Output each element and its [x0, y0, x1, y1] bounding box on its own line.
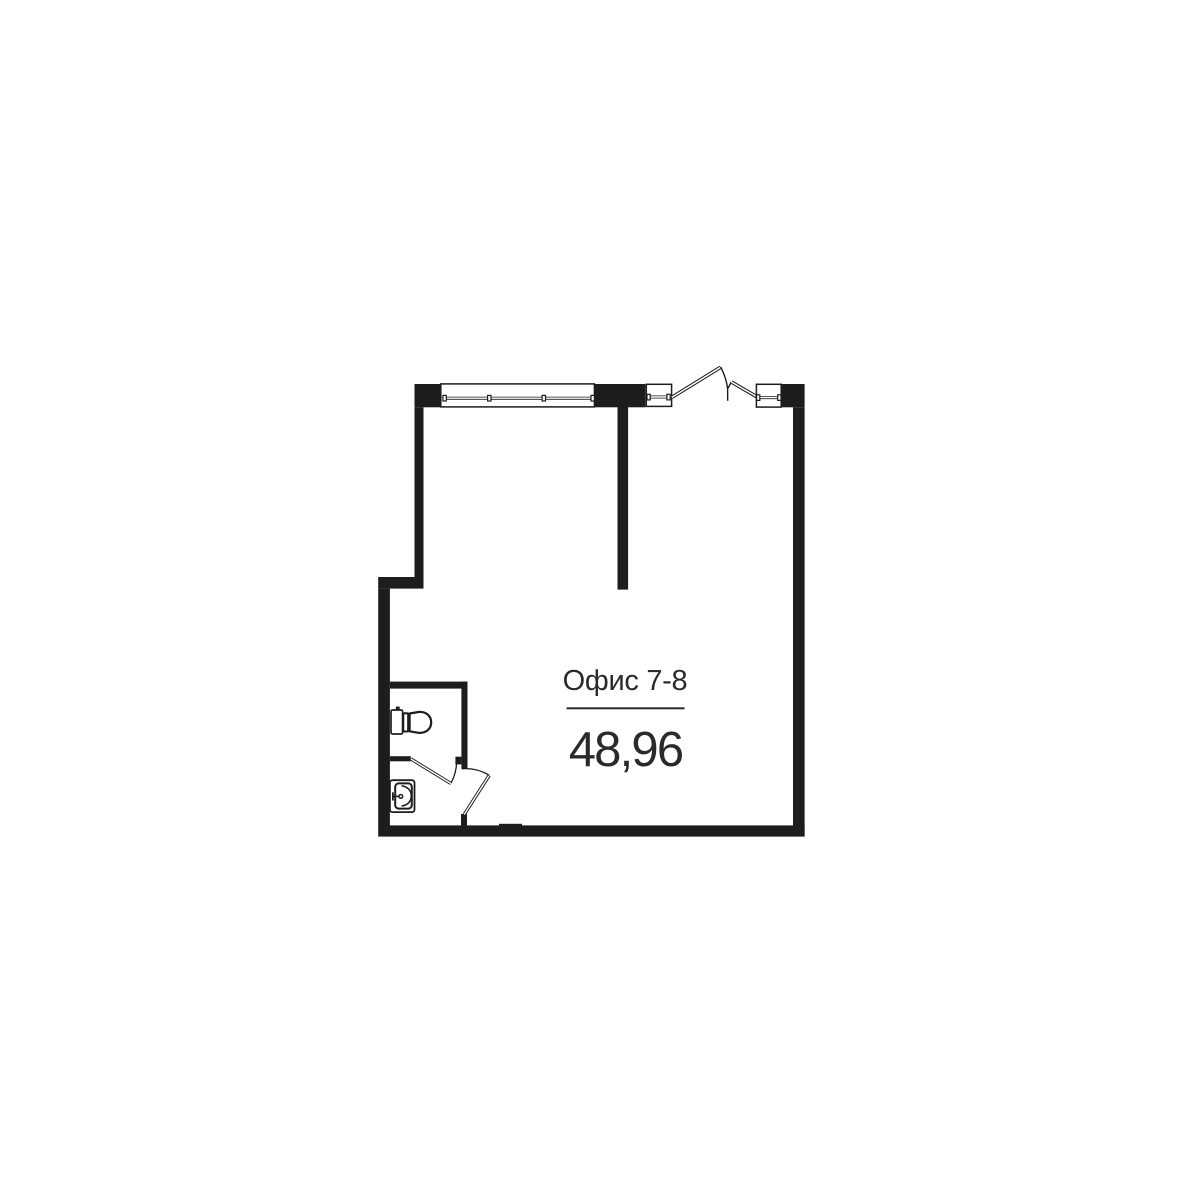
svg-text:48,96: 48,96 [569, 723, 683, 777]
svg-text:Офис 7-8: Офис 7-8 [563, 665, 688, 697]
